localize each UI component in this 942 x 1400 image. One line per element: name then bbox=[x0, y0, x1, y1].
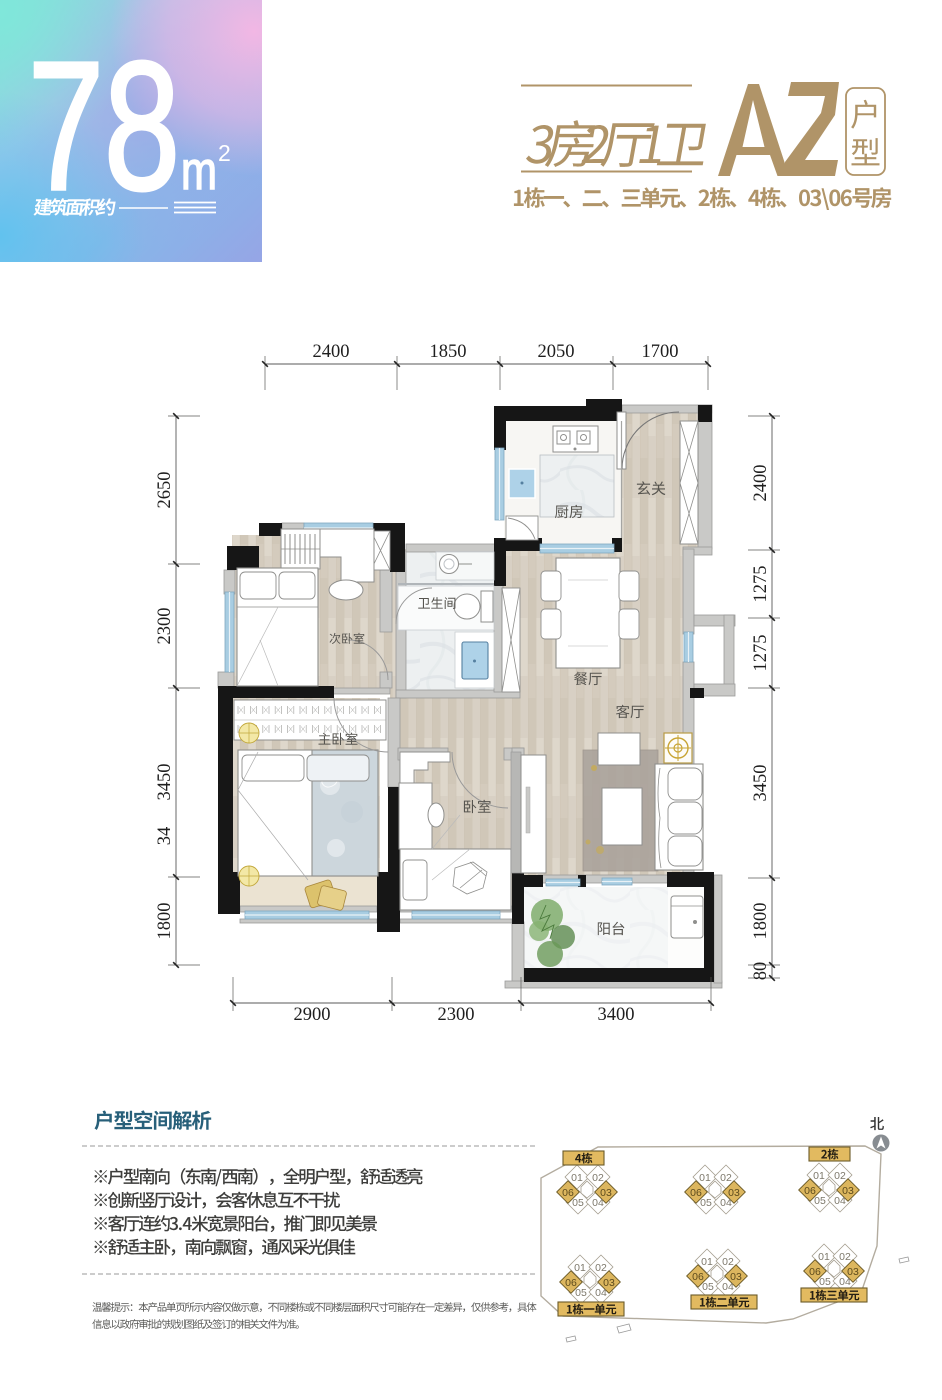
svg-text:2050: 2050 bbox=[538, 342, 575, 362]
svg-text:01: 01 bbox=[818, 1251, 830, 1263]
svg-text:1700: 1700 bbox=[642, 342, 679, 362]
svg-text:04: 04 bbox=[592, 1197, 604, 1209]
svg-text:02: 02 bbox=[722, 1256, 734, 1268]
svg-text:05: 05 bbox=[572, 1197, 584, 1209]
svg-text:3450: 3450 bbox=[751, 765, 771, 802]
svg-text:01: 01 bbox=[699, 1172, 711, 1184]
svg-text:1275: 1275 bbox=[751, 635, 771, 672]
svg-text:04: 04 bbox=[839, 1276, 851, 1288]
svg-text:04: 04 bbox=[595, 1287, 607, 1299]
svg-text:02: 02 bbox=[595, 1262, 607, 1274]
svg-text:34: 34 bbox=[155, 827, 175, 846]
svg-text:01: 01 bbox=[571, 1172, 583, 1184]
svg-text:05: 05 bbox=[819, 1276, 831, 1288]
svg-text:80: 80 bbox=[751, 962, 771, 981]
svg-text:04: 04 bbox=[722, 1281, 734, 1293]
svg-text:01: 01 bbox=[574, 1262, 586, 1274]
svg-text:01: 01 bbox=[701, 1256, 713, 1268]
svg-text:04: 04 bbox=[720, 1197, 732, 1209]
svg-text:2400: 2400 bbox=[751, 465, 771, 502]
svg-text:2650: 2650 bbox=[155, 472, 175, 509]
svg-text:02: 02 bbox=[834, 1170, 846, 1182]
svg-text:2300: 2300 bbox=[438, 1005, 475, 1025]
svg-text:1275: 1275 bbox=[751, 566, 771, 603]
svg-text:1850: 1850 bbox=[430, 342, 467, 362]
svg-text:3450: 3450 bbox=[155, 764, 175, 801]
svg-text:2400: 2400 bbox=[313, 342, 350, 362]
svg-text:05: 05 bbox=[814, 1195, 826, 1207]
svg-text:05: 05 bbox=[700, 1197, 712, 1209]
svg-text:02: 02 bbox=[592, 1172, 604, 1184]
svg-text:02: 02 bbox=[720, 1172, 732, 1184]
svg-text:1800: 1800 bbox=[751, 903, 771, 940]
svg-text:3400: 3400 bbox=[598, 1005, 635, 1025]
svg-text:05: 05 bbox=[702, 1281, 714, 1293]
svg-text:m: m bbox=[181, 141, 217, 201]
svg-text:2300: 2300 bbox=[155, 608, 175, 645]
svg-text:78: 78 bbox=[28, 23, 180, 228]
svg-text:2: 2 bbox=[218, 140, 231, 166]
svg-text:1800: 1800 bbox=[155, 903, 175, 940]
svg-text:01: 01 bbox=[813, 1170, 825, 1182]
svg-text:04: 04 bbox=[834, 1195, 846, 1207]
svg-text:02: 02 bbox=[839, 1251, 851, 1263]
svg-text:05: 05 bbox=[575, 1287, 587, 1299]
svg-text:2900: 2900 bbox=[294, 1005, 331, 1025]
